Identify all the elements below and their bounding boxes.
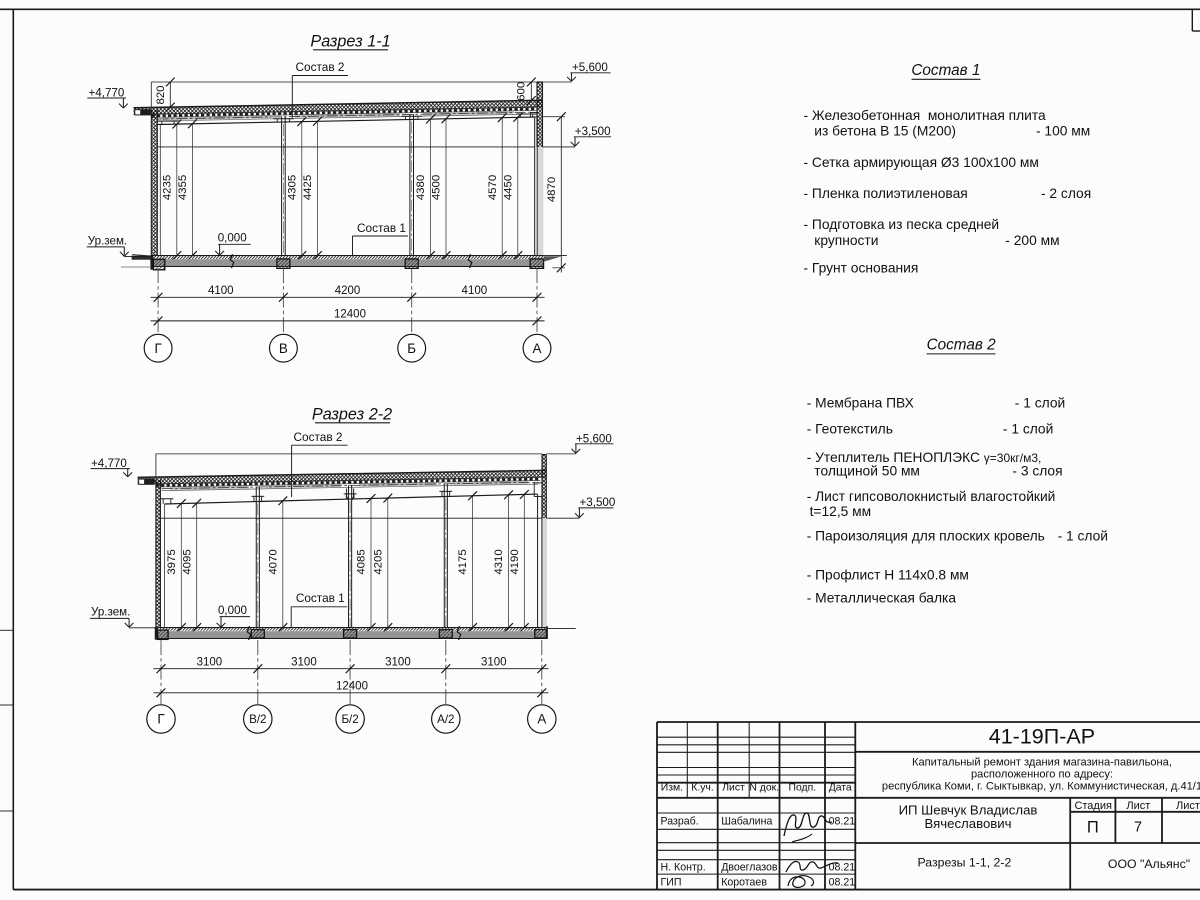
svg-text:Капитальный ремонт здания мага: Капитальный ремонт здания магазина-павил… xyxy=(912,757,1172,769)
svg-text:- 1 слой: - 1 слой xyxy=(1003,422,1053,437)
svg-text:4100: 4100 xyxy=(208,285,234,297)
svg-text:Стадия: Стадия xyxy=(1074,800,1112,812)
svg-text:- 1 слой: - 1 слой xyxy=(1015,396,1065,411)
svg-text:3100: 3100 xyxy=(385,656,411,668)
svg-text:4200: 4200 xyxy=(335,285,361,297)
svg-text:Г: Г xyxy=(154,341,161,356)
svg-text:- 1 слой: - 1 слой xyxy=(1058,529,1108,544)
svg-text:Ур.зем.: Ур.зем. xyxy=(91,606,130,619)
svg-text:- 200 мм: - 200 мм xyxy=(1005,233,1059,248)
svg-text:4205: 4205 xyxy=(373,549,385,574)
svg-text:Состав 2: Состав 2 xyxy=(296,60,345,74)
svg-text:Состав 1: Состав 1 xyxy=(357,221,406,235)
svg-text:4380: 4380 xyxy=(415,175,427,200)
svg-text:4425: 4425 xyxy=(302,175,314,200)
svg-text:4095: 4095 xyxy=(181,549,193,574)
svg-text:Состав 2: Состав 2 xyxy=(294,430,343,444)
svg-text:4190: 4190 xyxy=(509,549,521,574)
svg-text:Разраб.: Разраб. xyxy=(661,816,699,828)
svg-text:Двоеглазов: Двоеглазов xyxy=(721,862,778,874)
svg-text:А/2: А/2 xyxy=(437,713,454,726)
svg-text:- Сетка армирующая Ø3 100x100: - Сетка армирующая Ø3 100x100 мм xyxy=(804,155,1039,170)
svg-text:4175: 4175 xyxy=(457,549,469,574)
svg-text:4500: 4500 xyxy=(431,175,443,200)
svg-text:- Подготовка из песка средней: - Подготовка из песка средней xyxy=(804,217,1000,232)
svg-text:4310: 4310 xyxy=(493,549,505,574)
svg-text:- Профлист Н 114x0.8 мм: - Профлист Н 114x0.8 мм xyxy=(807,567,969,582)
svg-text:N док.: N док. xyxy=(749,783,779,794)
svg-text:Изм.: Изм. xyxy=(661,783,683,794)
svg-text:+5,600: +5,600 xyxy=(572,61,608,74)
svg-text:Лист: Лист xyxy=(722,783,745,794)
svg-text:- Пароизоляция для плоских кро: - Пароизоляция для плоских кровель xyxy=(807,529,1045,544)
svg-text:0,000: 0,000 xyxy=(218,604,247,617)
svg-text:Б: Б xyxy=(407,341,416,356)
svg-text:41-19П-АР: 41-19П-АР xyxy=(989,725,1095,749)
svg-text:Б/2: Б/2 xyxy=(341,713,358,726)
svg-text:+4,770: +4,770 xyxy=(89,86,125,99)
svg-text:Разрезы 1-1, 2-2: Разрезы 1-1, 2-2 xyxy=(917,855,1011,869)
svg-text:- 3 слоя: - 3 слоя xyxy=(1012,464,1062,479)
svg-text:4870: 4870 xyxy=(546,177,558,202)
svg-text:t=12,5 мм: t=12,5 мм xyxy=(810,504,872,519)
svg-text:4355: 4355 xyxy=(177,175,189,200)
svg-text:В/2: В/2 xyxy=(249,713,266,726)
svg-text:из бетона В 15 (М200): из бетона В 15 (М200) xyxy=(814,124,956,139)
svg-text:Коротаев: Коротаев xyxy=(721,877,767,889)
svg-text:4235: 4235 xyxy=(162,175,174,200)
svg-text:- 2 слоя: - 2 слоя xyxy=(1041,186,1091,201)
svg-text:- Пленка полиэтиленовая: - Пленка полиэтиленовая xyxy=(804,186,968,201)
svg-text:расположенного по адресу:: расположенного по адресу: xyxy=(971,768,1113,780)
svg-text:600: 600 xyxy=(516,82,528,101)
svg-text:толщиной 50 мм: толщиной 50 мм xyxy=(814,464,920,479)
svg-text:0,000: 0,000 xyxy=(218,231,247,244)
svg-text:- Металлическая балка: - Металлическая балка xyxy=(807,590,957,605)
svg-text:7: 7 xyxy=(1134,819,1142,835)
svg-text:3100: 3100 xyxy=(197,656,223,668)
svg-text:08.21: 08.21 xyxy=(829,877,856,889)
svg-text:- Лист гипсоволокнистый влагос: - Лист гипсоволокнистый влагостойкий xyxy=(807,489,1056,504)
svg-text:Листов: Листов xyxy=(1176,800,1200,812)
svg-text:08.21: 08.21 xyxy=(829,816,856,828)
svg-text:- Железобетонная монолитная п: - Железобетонная монолитная плита xyxy=(804,108,1047,123)
svg-text:3975: 3975 xyxy=(166,549,178,574)
svg-text:4100: 4100 xyxy=(462,285,488,297)
svg-text:Вячеславович: Вячеславович xyxy=(924,816,1011,831)
svg-text:Г: Г xyxy=(157,712,164,727)
svg-text:3100: 3100 xyxy=(291,656,317,668)
svg-text:12400: 12400 xyxy=(334,309,366,321)
svg-text:А: А xyxy=(533,341,542,356)
svg-text:крупности: крупности xyxy=(814,233,878,248)
svg-text:А: А xyxy=(537,712,546,727)
svg-text:Подп.: Подп. xyxy=(788,783,816,794)
svg-text:+3,500: +3,500 xyxy=(580,496,616,509)
svg-text:12400: 12400 xyxy=(336,680,368,692)
svg-text:- Грунт основания: - Грунт основания xyxy=(804,261,919,276)
svg-text:4305: 4305 xyxy=(287,175,299,200)
svg-text:- Геотекстиль: - Геотекстиль xyxy=(807,422,893,437)
svg-text:республика Коми, г. Сыктывкар,: республика Коми, г. Сыктывкар, ул. Комму… xyxy=(882,780,1200,792)
svg-text:Разрез 1-1: Разрез 1-1 xyxy=(310,33,390,51)
svg-text:Дата: Дата xyxy=(829,783,852,794)
svg-text:- Мембрана ПВХ: - Мембрана ПВХ xyxy=(807,396,914,411)
svg-text:4070: 4070 xyxy=(268,549,280,574)
svg-text:Состав 2: Состав 2 xyxy=(927,337,997,354)
svg-text:Лист: Лист xyxy=(1126,800,1150,812)
svg-text:820: 820 xyxy=(155,85,167,104)
svg-text:В: В xyxy=(279,341,288,356)
svg-text:+4,770: +4,770 xyxy=(91,457,127,470)
svg-text:- 100 мм: - 100 мм xyxy=(1036,124,1090,139)
svg-text:Состав 1: Состав 1 xyxy=(296,591,345,605)
svg-text:Шабалина: Шабалина xyxy=(721,816,772,828)
svg-text:3100: 3100 xyxy=(481,656,507,668)
svg-text:Н. Контр.: Н. Контр. xyxy=(661,862,706,874)
svg-text:Ур.зем.: Ур.зем. xyxy=(88,235,127,248)
svg-text:ООО "Альянс": ООО "Альянс" xyxy=(1108,857,1190,871)
svg-text:Разрез 2-2: Разрез 2-2 xyxy=(312,406,392,424)
svg-text:К.уч.: К.уч. xyxy=(691,783,713,794)
svg-text:П: П xyxy=(1087,818,1099,836)
svg-text:4450: 4450 xyxy=(503,175,515,200)
svg-text:ГИП: ГИП xyxy=(661,877,682,889)
svg-text:+3,500: +3,500 xyxy=(575,125,611,138)
svg-text:4085: 4085 xyxy=(356,549,368,574)
svg-text:4570: 4570 xyxy=(487,175,499,200)
svg-text:Состав 1: Состав 1 xyxy=(911,62,980,79)
